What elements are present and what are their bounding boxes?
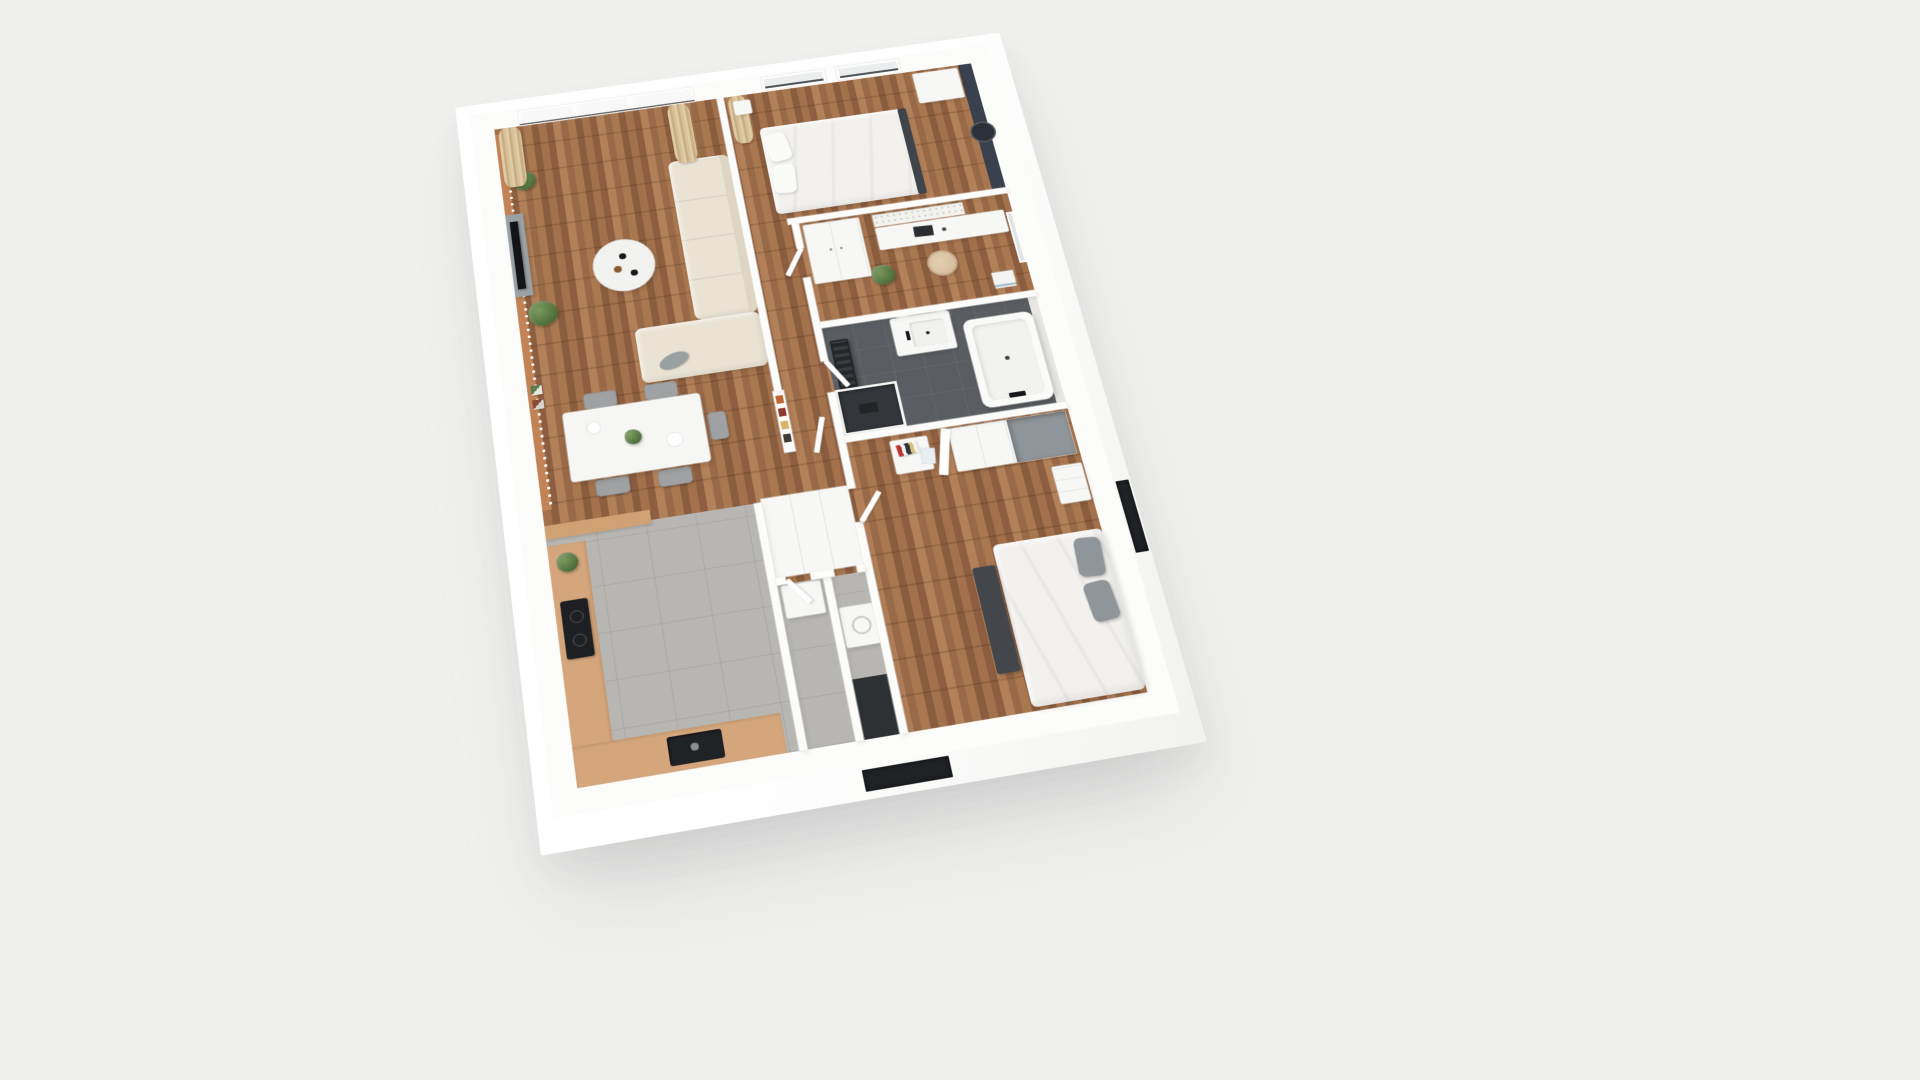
apartment-interior	[470, 44, 1180, 819]
storage-closet-block	[761, 486, 864, 579]
nightstand-magazine	[921, 448, 935, 463]
round-mirror	[970, 122, 997, 143]
laptop	[913, 225, 934, 237]
dining-chair-3	[595, 475, 632, 497]
bedroom2-wardrobe-open	[1006, 411, 1076, 462]
scene-background	[0, 0, 1920, 1080]
sofa-chaise-section	[634, 311, 769, 384]
office-magazines	[992, 270, 1016, 285]
shelf-book-3	[780, 420, 789, 429]
plant-living-2	[527, 299, 559, 327]
office-plant	[870, 263, 897, 286]
wardrobe-open-door-leaf	[939, 428, 950, 475]
dining-chair-4	[657, 466, 694, 488]
shelf-book-2	[778, 408, 787, 417]
wall-art-frame-1	[530, 384, 542, 395]
wall-utility-top-3	[856, 564, 865, 572]
coffee-table	[590, 236, 658, 295]
bedroom1-closet	[912, 68, 965, 103]
office-wardrobe	[803, 218, 872, 284]
bedroom1-pillow-2	[772, 164, 798, 194]
shelf-book-1	[775, 395, 784, 404]
bedroom2-wardrobe-closed	[948, 420, 1018, 472]
shelf-book-4	[783, 433, 792, 442]
building-exterior-walls	[455, 33, 1207, 856]
wall-art-frame-2	[532, 399, 544, 410]
office-chair	[927, 250, 959, 276]
bedroom2-dresser	[1052, 463, 1092, 504]
bedroom2-bed	[992, 528, 1146, 708]
dining-stool	[707, 410, 730, 440]
bedroom1-nightstand	[733, 100, 753, 116]
office-window	[1006, 211, 1027, 263]
